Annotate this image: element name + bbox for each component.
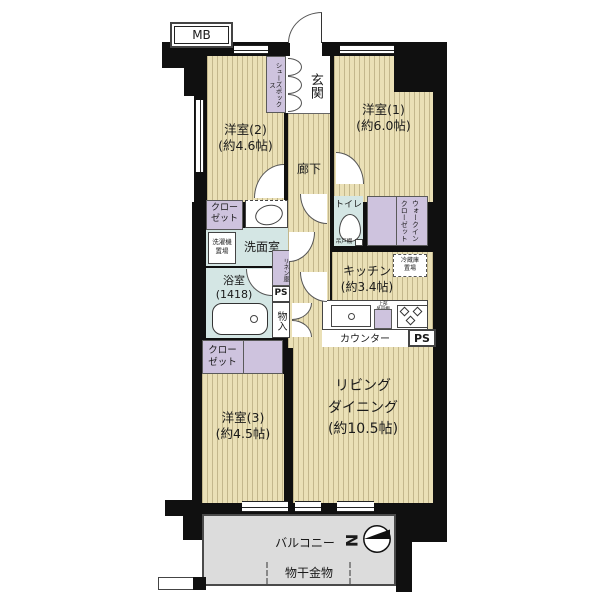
toilet-bowl (339, 214, 361, 242)
wall-corner-top-right (394, 42, 447, 92)
kitchen-cabinet (374, 309, 392, 329)
counter-label: カウンター (322, 333, 408, 346)
bedroom3-name: 洋室(3) (202, 410, 284, 426)
meter-box-label: MB (172, 28, 231, 44)
bedroom3-area: (約4.5帖) (202, 426, 284, 442)
bathtub-drain (250, 315, 258, 323)
toilet-cabinet-label: 吊戸棚 (333, 239, 355, 246)
boundary-marker (193, 577, 206, 590)
window (242, 501, 288, 512)
toilet-small-box (355, 239, 363, 246)
walk-in-closet-divider (396, 196, 397, 246)
walk-in-closet-label: ウォークイン クローゼット (398, 198, 420, 244)
drying-fixture-mark (266, 562, 268, 584)
washer-space-label: 洗濯機 置場 (208, 238, 236, 256)
kitchen-sink-drain (348, 313, 355, 320)
pipe-space-mid-label: PS (272, 288, 290, 300)
compass-north-letter: N (343, 531, 364, 549)
stove-burner (406, 316, 416, 326)
bedroom3-closet-label: クロー ゼット (202, 345, 243, 369)
storage-monoire-label: 物入 (274, 306, 287, 336)
kitchen-counter: 上部 吊戸棚 (322, 300, 428, 330)
living-label: リビング ダイニング (約10.5帖) (293, 376, 433, 441)
toilet-label: トイレ (333, 200, 364, 212)
linen-closet: リネン庫 (272, 250, 290, 286)
window (340, 45, 394, 54)
bedroom2-label: 洋室(2) (約4.6帖) (207, 122, 284, 155)
entrance-door-arc (288, 12, 322, 43)
shoebox-label: シューズボックス (268, 60, 281, 110)
drying-fixture-mark (349, 562, 351, 584)
pipe-space-kitchen-label: PS (408, 332, 436, 346)
genkan-label: 玄関 (306, 64, 323, 108)
stove-burner (413, 307, 423, 317)
bedroom3-label: 洋室(3) (約4.5帖) (202, 410, 284, 443)
window (295, 501, 321, 512)
bedroom2-name: 洋室(2) (207, 122, 284, 138)
bathtub (212, 303, 268, 335)
drying-fixture-label: 物干金物 (272, 566, 346, 582)
window (234, 45, 268, 54)
hallway-label: 廊下 (291, 162, 327, 178)
washbasin-sink (253, 202, 285, 228)
compass-icon (362, 524, 392, 554)
stove-burner (400, 307, 410, 317)
kitchen-sink (331, 305, 371, 327)
bedroom2-area: (約4.6帖) (207, 138, 284, 154)
bedroom1-label: 洋室(1) (約6.0帖) (334, 102, 433, 135)
window (337, 501, 374, 512)
bedroom2-closet-label: クロー ゼット (206, 203, 243, 226)
bath-size: (1418) (206, 288, 262, 302)
entrance-gap (290, 42, 322, 56)
floorplan: MB シューズボックス 玄関 洋室(2) (約4.6帖) 洋室(1) (約6.0… (0, 0, 600, 600)
kitchen-stove (397, 305, 428, 328)
bedroom1-area: (約6.0帖) (334, 118, 433, 134)
kitchen-area: (約3.4帖) (332, 280, 402, 296)
window (195, 100, 204, 172)
wall-balcony-right (396, 538, 412, 592)
kitchen-name: キッチン (332, 264, 402, 280)
meter-box: MB (170, 22, 233, 48)
washbasin-counter (245, 200, 288, 228)
bedroom3-closet-divider (243, 340, 244, 374)
bedroom1-name: 洋室(1) (334, 102, 433, 118)
kitchen-label: キッチン (約3.4帖) (332, 264, 402, 295)
